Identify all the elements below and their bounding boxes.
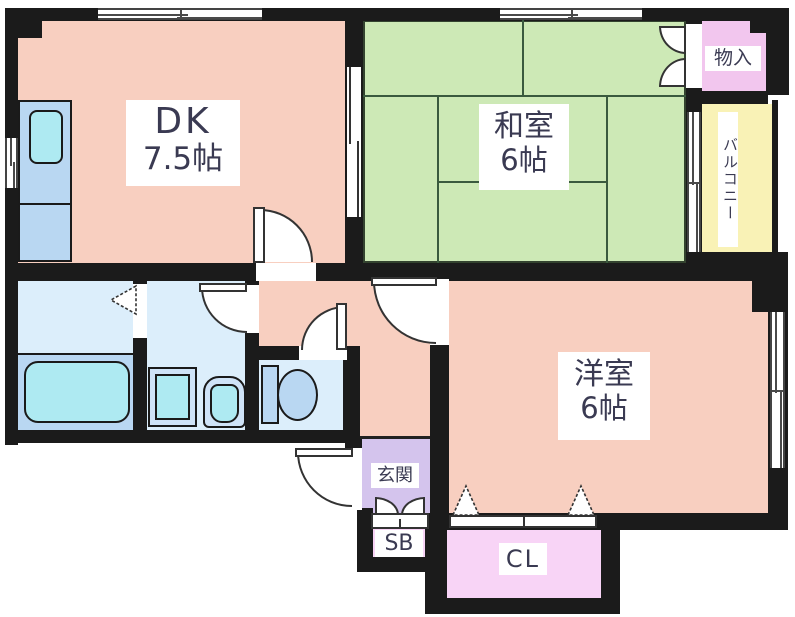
wall xyxy=(430,598,620,614)
dk-room-label: DK 7.5帖 xyxy=(126,100,240,186)
closet-label: CL xyxy=(499,543,547,575)
bathroom-folding-door-marker xyxy=(108,284,138,316)
tatami-line xyxy=(522,20,524,97)
shoe-box-label: SB xyxy=(375,530,423,557)
wall xyxy=(752,263,788,312)
dk-door-leaf xyxy=(253,207,265,263)
dk-area: 7.5帖 xyxy=(126,142,240,177)
japanese-room-top-window xyxy=(500,8,642,20)
japanese-room-name: 和室 xyxy=(479,110,569,144)
dk-top-window xyxy=(98,8,262,20)
shoe-box-door-track xyxy=(371,513,429,529)
western-room-door-leaf xyxy=(371,277,437,286)
tatami-line xyxy=(437,95,439,263)
western-room-right-window xyxy=(770,312,785,468)
entrance-step-line xyxy=(360,436,430,439)
japanese-room-label: 和室 6帖 xyxy=(479,104,569,190)
kitchen-sink xyxy=(29,110,63,164)
balcony-label: バルコニー xyxy=(718,112,738,247)
tatami-line xyxy=(363,95,686,97)
balcony-railing xyxy=(772,100,778,258)
tatami-line xyxy=(606,95,608,263)
western-room-area: 6帖 xyxy=(558,392,650,424)
floor-plan: DK 7.5帖 和室 6帖 洋室 6帖 物入 バルコニー 玄関 SB CL xyxy=(0,0,795,617)
dk-left-window xyxy=(5,138,18,188)
wash-basin xyxy=(203,376,246,428)
balcony-sliding-window xyxy=(687,112,701,252)
western-room-name: 洋室 xyxy=(558,358,650,392)
dk-door-opening xyxy=(256,263,316,281)
wall xyxy=(601,530,620,614)
entrance-door-leaf xyxy=(295,448,353,457)
washing-machine-pan xyxy=(148,367,197,427)
wall xyxy=(343,346,360,443)
kitchen-counter-divider xyxy=(18,203,72,205)
dk-name: DK xyxy=(126,102,240,142)
toilet-door-leaf xyxy=(336,303,347,350)
closet-door-marker xyxy=(565,484,597,517)
wall xyxy=(686,91,768,104)
entrance-label: 玄関 xyxy=(371,463,419,488)
bathtub xyxy=(24,361,130,423)
toilet-bowl xyxy=(277,369,318,421)
wall xyxy=(766,8,789,95)
storage-door-opening xyxy=(686,24,702,88)
entrance-door-arc xyxy=(297,452,352,507)
japanese-room-area: 6帖 xyxy=(479,144,569,176)
washroom-door-leaf xyxy=(199,283,247,292)
wall xyxy=(750,8,768,33)
washroom-door-opening xyxy=(245,285,259,333)
dk-japanese-sliding-door xyxy=(347,67,361,217)
western-room-label: 洋室 6帖 xyxy=(558,352,650,440)
closet-door-marker xyxy=(450,484,482,517)
wall xyxy=(5,430,360,443)
wall xyxy=(5,8,18,445)
storage-label: 物入 xyxy=(705,46,761,71)
